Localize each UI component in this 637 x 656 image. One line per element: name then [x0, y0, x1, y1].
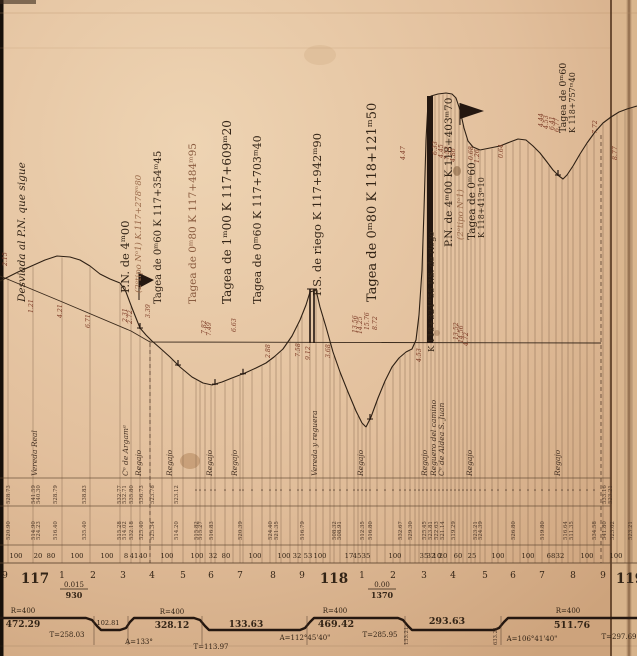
svg-text:4.47: 4.47	[400, 146, 407, 161]
svg-text:516.83: 516.83	[209, 521, 215, 540]
svg-text:133.21: 133.21	[404, 627, 410, 645]
svg-text:7.49: 7.49	[206, 322, 213, 336]
svg-text:515.27: 515.27	[198, 521, 204, 540]
svg-text:8: 8	[124, 552, 128, 560]
svg-text:4.53: 4.53	[416, 348, 423, 363]
svg-text:2.15: 2.15	[2, 252, 9, 267]
svg-text:469.42: 469.42	[318, 619, 354, 630]
svg-text:R=400: R=400	[160, 608, 185, 616]
svg-text:2: 2	[390, 571, 396, 581]
svg-text:100: 100	[161, 552, 174, 560]
svg-text:20: 20	[439, 552, 448, 560]
svg-text:P.N. de 4ᵐ00: P.N. de 4ᵐ00	[118, 220, 132, 293]
svg-text:508.91: 508.91	[337, 521, 343, 540]
svg-text:A=112°45'40": A=112°45'40"	[279, 634, 331, 642]
svg-text:Regajo: Regajo	[165, 449, 174, 477]
svg-text:9: 9	[600, 571, 606, 581]
svg-text:P.N. de 4ᵐ00 K.118+403ᵐ70: P.N. de 4ᵐ00 K.118+403ᵐ70	[443, 98, 455, 247]
svg-text:6.77: 6.77	[554, 118, 561, 132]
svg-text:511.76: 511.76	[554, 620, 591, 631]
svg-text:540.30: 540.30	[36, 485, 42, 504]
svg-text:4: 4	[450, 571, 456, 581]
svg-text:526.80: 526.80	[511, 521, 517, 540]
svg-text:3.39: 3.39	[145, 304, 152, 318]
svg-text:T=113.97: T=113.97	[193, 643, 228, 651]
svg-text:524.39: 524.39	[478, 521, 484, 540]
svg-text:Vereda Real: Vereda Real	[30, 430, 39, 476]
svg-text:4.86: 4.86	[450, 148, 457, 163]
svg-text:118: 118	[320, 571, 348, 587]
svg-text:328.12: 328.12	[155, 621, 189, 631]
svg-text:528.79: 528.79	[53, 485, 59, 504]
svg-text:Tagea de 0ᵐ80 K 118+121ᵐ50: Tagea de 0ᵐ80 K 118+121ᵐ50	[365, 103, 380, 302]
svg-text:R=400: R=400	[323, 607, 348, 615]
svg-text:4: 4	[149, 571, 155, 581]
svg-text:1.21: 1.21	[28, 299, 35, 313]
svg-text:102.81: 102.81	[97, 619, 120, 627]
svg-text:T=258.03: T=258.03	[49, 631, 84, 639]
svg-text:511.35: 511.35	[569, 521, 575, 540]
svg-text:133.63: 133.63	[229, 620, 263, 630]
svg-text:536.73: 536.73	[139, 485, 145, 504]
svg-text:100: 100	[314, 552, 327, 560]
svg-text:472.29: 472.29	[6, 620, 40, 630]
svg-text:8.72: 8.72	[372, 316, 379, 330]
svg-text:514.20: 514.20	[174, 521, 180, 540]
svg-text:K 118+324ᵐ55 P.S. de riego: K 118+324ᵐ55 P.S. de riego	[427, 231, 437, 352]
svg-text:523.02: 523.02	[610, 521, 616, 540]
svg-text:520.39: 520.39	[238, 521, 244, 540]
svg-text:1370: 1370	[371, 590, 394, 600]
svg-text:5: 5	[482, 571, 488, 581]
svg-text:Regajo: Regajo	[465, 449, 474, 477]
svg-text:(2ᵒtipo Nᵒ1): (2ᵒtipo Nᵒ1)	[455, 189, 466, 240]
svg-text:100: 100	[249, 552, 262, 560]
svg-text:2.88: 2.88	[265, 344, 272, 359]
svg-text:25: 25	[468, 552, 477, 560]
svg-text:528.73: 528.73	[6, 485, 12, 504]
svg-text:521.14: 521.14	[440, 521, 446, 540]
svg-text:Regajo: Regajo	[230, 449, 239, 477]
svg-text:117: 117	[21, 571, 49, 587]
svg-text:119: 119	[616, 571, 637, 587]
svg-text:516.79: 516.79	[300, 521, 306, 540]
svg-text:512.35: 512.35	[360, 521, 366, 540]
svg-text:541.80: 541.80	[602, 521, 608, 540]
svg-text:8.77: 8.77	[612, 146, 619, 160]
svg-text:4.72: 4.72	[463, 332, 470, 347]
svg-text:525.34: 525.34	[150, 521, 156, 540]
svg-text:100: 100	[10, 552, 23, 560]
svg-text:3: 3	[120, 571, 126, 581]
svg-text:535.80: 535.80	[129, 485, 135, 504]
svg-text:100: 100	[581, 552, 594, 560]
svg-text:100: 100	[278, 552, 291, 560]
svg-text:8: 8	[570, 571, 576, 581]
svg-text:100: 100	[389, 552, 402, 560]
svg-text:7.72: 7.72	[592, 120, 599, 134]
svg-text:523.12: 523.12	[174, 485, 180, 504]
svg-text:534.58: 534.58	[592, 521, 598, 540]
svg-text:529.30: 529.30	[408, 521, 414, 540]
svg-text:1: 1	[59, 571, 65, 581]
svg-text:R=400: R=400	[11, 607, 36, 615]
svg-text:516.40: 516.40	[53, 521, 59, 540]
svg-text:523.21: 523.21	[628, 521, 634, 540]
svg-text:2.72: 2.72	[127, 310, 134, 325]
svg-text:80: 80	[222, 552, 231, 560]
svg-text:100: 100	[191, 552, 204, 560]
svg-text:100: 100	[610, 552, 623, 560]
svg-text:32: 32	[293, 552, 302, 560]
svg-text:53: 53	[304, 552, 313, 560]
distance-row: 1002080100100841401001003280100100325310…	[10, 552, 623, 560]
longitudinal-profile-drawing: Desviada al P.N. que sigueP.N. de 4ᵐ00(2…	[0, 0, 637, 656]
svg-text:14.25: 14.25	[357, 316, 364, 334]
svg-text:40: 40	[139, 552, 148, 560]
svg-text:523.78: 523.78	[150, 485, 156, 504]
svg-text:6: 6	[510, 571, 516, 581]
svg-text:532.67: 532.67	[398, 521, 404, 540]
svg-text:535.40: 535.40	[82, 521, 88, 540]
svg-text:7: 7	[237, 571, 243, 581]
svg-text:521.35: 521.35	[274, 521, 280, 540]
svg-text:538.83: 538.83	[82, 485, 88, 504]
svg-text:5: 5	[180, 571, 186, 581]
svg-text:7: 7	[539, 571, 545, 581]
svg-text:T=297.69: T=297.69	[601, 633, 636, 641]
svg-text:7.58: 7.58	[295, 343, 302, 357]
svg-text:514.02: 514.02	[122, 521, 128, 540]
svg-text:Regajo: Regajo	[356, 449, 365, 477]
svg-text:523.21: 523.21	[608, 485, 614, 504]
svg-text:68: 68	[547, 552, 556, 560]
svg-text:A=106°41'40": A=106°41'40"	[506, 635, 558, 643]
svg-text:100: 100	[522, 552, 535, 560]
svg-text:293.63: 293.63	[429, 616, 465, 627]
svg-text:633.21: 633.21	[493, 627, 499, 645]
svg-text:6: 6	[208, 571, 214, 581]
svg-text:Desviada al P.N. que sigue: Desviada al P.N. que sigue	[16, 162, 28, 303]
svg-text:0.015: 0.015	[64, 581, 84, 589]
svg-text:35: 35	[362, 552, 371, 560]
svg-text:2: 2	[90, 571, 96, 581]
svg-text:100: 100	[71, 552, 84, 560]
svg-text:100: 100	[101, 552, 114, 560]
svg-text:0.64: 0.64	[498, 144, 505, 158]
svg-text:K 118+413ᵐ10: K 118+413ᵐ10	[477, 177, 486, 238]
svg-text:80: 80	[47, 552, 56, 560]
svg-text:4.21: 4.21	[57, 304, 64, 319]
svg-text:P.S. de riego K 117+942ᵐ90: P.S. de riego K 117+942ᵐ90	[310, 133, 324, 296]
svg-text:6.63: 6.63	[231, 318, 238, 332]
svg-text:3: 3	[421, 571, 427, 581]
svg-text:Cᵒ de Aldea S. Juan: Cᵒ de Aldea S. Juan	[437, 403, 446, 476]
svg-text:532.71: 532.71	[122, 485, 128, 504]
svg-text:9: 9	[299, 571, 305, 581]
svg-text:532.18: 532.18	[129, 521, 135, 540]
svg-text:6.71: 6.71	[85, 314, 92, 328]
svg-text:41: 41	[130, 552, 139, 560]
svg-text:520.90: 520.90	[6, 521, 12, 540]
profile-sheet: Desviada al P.N. que sigueP.N. de 4ᵐ00(2…	[0, 0, 637, 656]
svg-text:9.12: 9.12	[305, 346, 312, 360]
svg-text:Tagea de 1ᵐ00 K 117+609ᵐ20: Tagea de 1ᵐ00 K 117+609ᵐ20	[220, 120, 234, 304]
svg-text:R=400: R=400	[556, 607, 581, 615]
svg-text:8: 8	[270, 571, 276, 581]
svg-text:20: 20	[34, 552, 43, 560]
svg-text:A=133°: A=133°	[124, 638, 153, 646]
svg-text:45: 45	[353, 552, 362, 560]
svg-text:Tagea de 0ᵐ60 K 117+703ᵐ40: Tagea de 0ᵐ60 K 117+703ᵐ40	[251, 135, 264, 304]
svg-text:3.68: 3.68	[325, 344, 332, 358]
svg-text:Vereda y reguera: Vereda y reguera	[310, 410, 319, 476]
svg-text:9: 9	[2, 571, 8, 581]
svg-text:Regajo: Regajo	[553, 449, 562, 477]
svg-text:1.26: 1.26	[474, 149, 481, 163]
svg-text:1: 1	[359, 571, 365, 581]
svg-text:Tagea de 0ᵐ80 K 117+484ᵐ95: Tagea de 0ᵐ80 K 117+484ᵐ95	[187, 143, 199, 304]
svg-text:524.23: 524.23	[36, 521, 42, 540]
svg-text:516.80: 516.80	[368, 521, 374, 540]
svg-text:32: 32	[556, 552, 565, 560]
svg-text:Regajo: Regajo	[420, 449, 429, 477]
svg-text:K 118+757ᵐ40: K 118+757ᵐ40	[568, 72, 577, 133]
svg-text:930: 930	[66, 590, 83, 600]
svg-text:Regajo: Regajo	[205, 449, 214, 477]
svg-text:15.76: 15.76	[364, 312, 371, 330]
svg-text:32: 32	[209, 552, 218, 560]
svg-text:(2ᵒtipo Nᵒ1) K.117+278ᵐ80: (2ᵒtipo Nᵒ1) K.117+278ᵐ80	[133, 174, 144, 293]
svg-text:519.29: 519.29	[451, 521, 457, 540]
svg-text:100: 100	[492, 552, 505, 560]
svg-text:T=285.95: T=285.95	[362, 631, 397, 639]
svg-text:Cᵒ de Argamᵃ: Cᵒ de Argamᵃ	[121, 425, 130, 476]
svg-text:60: 60	[454, 552, 463, 560]
svg-text:Regajo: Regajo	[134, 449, 143, 477]
svg-text:0.00: 0.00	[374, 581, 390, 589]
svg-text:519.80: 519.80	[540, 521, 546, 540]
svg-text:Tagea de 0ᵐ60 K 117+354ᵐ45: Tagea de 0ᵐ60 K 117+354ᵐ45	[153, 151, 164, 304]
svg-text:525.40: 525.40	[139, 521, 145, 540]
